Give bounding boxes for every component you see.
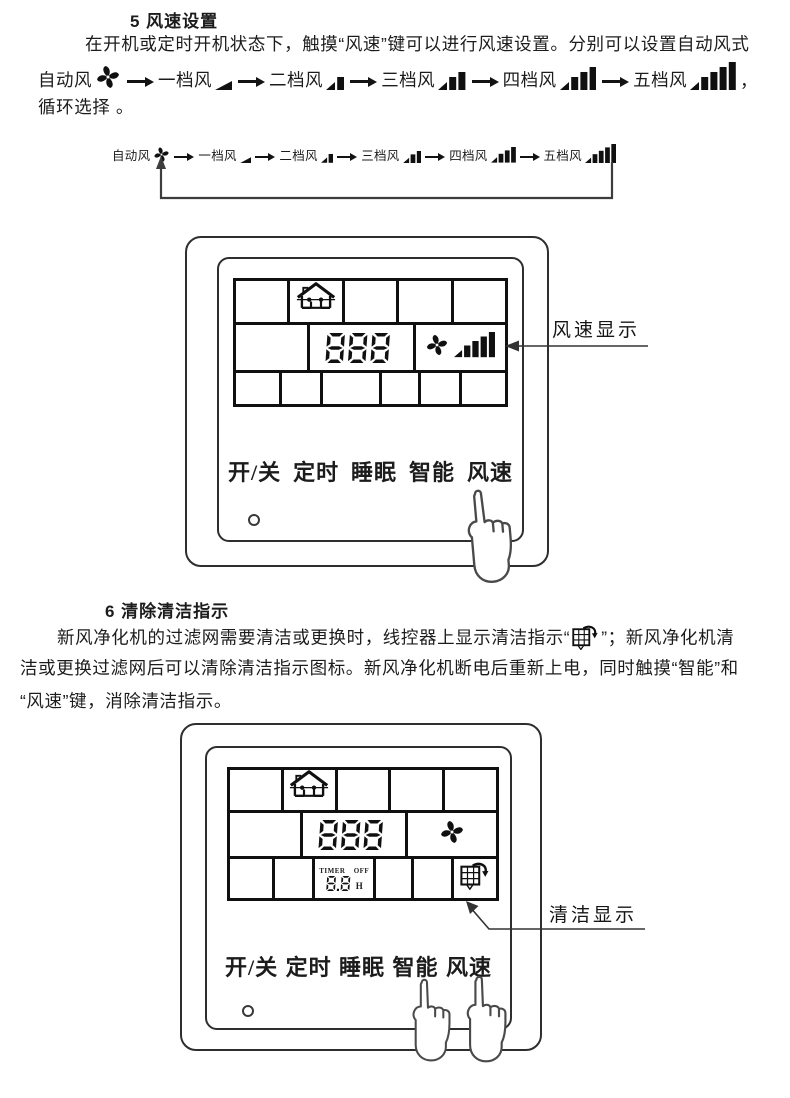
flow-item-speed5: 五档风 [633,62,736,90]
flow-item-label: 四档风 [449,150,487,163]
key-timer: 定时 [286,950,332,982]
section5-paragraph-tail: 循环选择 。 [38,97,134,118]
fan-speed-callout-label: 风速显示 [552,315,640,342]
speed-bars-icon [326,77,344,90]
speed-bars-icon [560,67,597,90]
fan-icon [153,146,170,163]
paragraph-text: 新风净化机的过滤网需要清洁或更换时，线控器上显示清洁指示“ [57,627,570,647]
key-power: 开/关 [225,950,278,982]
fan-speed-cycle-diagram: 自动风 一档风 二档风 三档风 四档风 五档风 [112,139,616,163]
section6-paragraph-line2: 洁或更换过滤网后可以清除清洁指示图标。新风净化机断电后重新上电，同时触摸“智能”… [20,658,739,679]
key-timer: 定时 [293,455,339,487]
key-fan-speed: 风速 [446,950,492,982]
cycle-loop-line [161,162,612,198]
timer-unit: H [356,882,363,891]
lcd-display [233,278,508,407]
fan-display-cell [408,813,496,856]
key-smart: 智能 [409,455,455,487]
lcd-cell [282,373,320,404]
lcd-cell [345,281,396,322]
indicator-light [248,514,260,526]
filter-clean-icon [572,625,599,655]
arrow-right-icon [127,80,145,83]
timer-display-cell: TIMER OFF H [315,859,373,898]
flow-item-label: 三档风 [361,150,399,163]
house-ventilation-icon [289,770,329,810]
fan-icon [95,64,121,90]
key-sleep: 睡眠 [351,455,397,487]
flow-item-label: 自动风 [112,150,150,163]
clean-indicator-cell [454,859,496,898]
key-power: 开/关 [228,455,281,487]
speed-bars-icon [690,62,736,90]
flow-item-speed4: 四档风 [449,147,515,163]
flow-item-speed3: 三档风 [361,150,421,163]
speed-bars-icon [585,144,616,163]
speed-bars-icon [321,154,333,163]
manual-page: 5 风速设置 在开机或定时开机状态下，触摸“风速”键可以进行风速设置。分别可以设… [0,0,790,1098]
flow-comma: ， [740,73,758,91]
flow-item-auto: 自动风 [38,64,121,90]
fan-speed-display-cell [416,325,505,370]
lcd-cell [236,325,307,370]
arrow-right-icon [238,80,256,83]
lcd-cell [230,813,300,856]
touch-key-row: 开/关 定时 睡眠 智能 风速 [228,455,513,487]
flow-item-speed2: 二档风 [269,72,344,90]
lcd-cell [236,281,287,322]
flow-item-label: 三档风 [381,72,435,90]
flow-item-label: 五档风 [544,150,582,163]
lcd-cell [236,373,279,404]
section5-heading: 5 风速设置 [130,7,218,32]
key-sleep: 睡眠 [339,950,385,982]
flow-item-speed4: 四档风 [503,67,597,90]
lcd-cell [391,770,442,810]
fan-icon [425,333,449,362]
flow-item-speed2: 二档风 [279,150,333,163]
arrow-right-icon [472,80,490,83]
section6-heading: 6 清除清洁指示 [105,597,229,622]
lcd-digits [318,820,391,850]
paragraph-text: ”；新风净化机清 [601,627,734,647]
section6-paragraph-line3: “风速”键，消除清洁指示。 [20,691,232,712]
flow-item-label: 一档风 [198,150,236,163]
flow-item-speed5: 五档风 [544,144,617,163]
arrow-right-icon [520,156,533,158]
flow-item-label: 二档风 [269,72,323,90]
section5-paragraph-line1: 在开机或定时开机状态下，触摸“风速”键可以进行风速设置。分别可以设置自动风式 [85,34,749,55]
lcd-cell [323,373,379,404]
arrow-right-icon [350,80,368,83]
touch-key-row: 开/关 定时 睡眠 智能 风速 [225,950,492,982]
lcd-cell [414,859,451,898]
fan-speed-sequence-inline: 自动风 一档风 二档风 三档风 四档风 五档风 ， [38,56,758,90]
timer-digits [326,876,354,891]
arrow-right-icon [602,80,620,83]
lcd-cell [382,373,418,404]
lcd-digits-cell [303,813,404,856]
section6-paragraph-line1: 新风净化机的过滤网需要清洁或更换时，线控器上显示清洁指示“”；新风净化机清 [57,625,734,655]
flow-item-label: 五档风 [633,72,687,90]
speed-bars-icon [438,72,465,90]
flow-item-label: 四档风 [503,72,557,90]
timer-off-label: OFF [354,867,370,875]
lcd-cell [230,770,281,810]
lcd-cell [399,281,450,322]
indicator-light [242,1005,254,1017]
flow-item-label: 自动风 [38,72,92,90]
arrow-right-icon [425,156,438,158]
lcd-digits [325,333,398,363]
lcd-cell [454,281,505,322]
speed-bars-icon [215,81,232,90]
flow-item-speed1: 一档风 [198,150,251,163]
speed-bars-icon [491,147,516,163]
timer-label: TIMER [319,867,345,875]
lcd-cell [462,373,505,404]
speed-bars-icon [240,157,252,163]
lcd-cell [421,373,459,404]
timer-labels: TIMER OFF [319,867,369,875]
flow-item-label: 二档风 [279,150,317,163]
speed-bars-icon [403,151,422,163]
house-ventilation-icon [296,281,336,322]
lcd-cell [284,770,335,810]
arrow-right-icon [255,156,268,158]
timer-value-row: H [326,876,363,891]
lcd-cell [290,281,341,322]
key-fan-speed: 风速 [467,455,513,487]
flow-item-label: 一档风 [158,72,212,90]
lcd-cell [445,770,496,810]
filter-clean-icon [460,862,490,895]
arrow-right-icon [174,156,187,158]
lcd-cell [376,859,411,898]
flow-item-speed3: 三档风 [381,72,465,90]
lcd-display: TIMER OFF H [227,767,499,901]
flow-item-speed1: 一档风 [158,72,232,90]
arrow-right-icon [337,156,350,158]
lcd-digits-cell [310,325,413,370]
lcd-cell [338,770,389,810]
clean-callout-label: 清洁显示 [549,900,637,927]
lcd-cell [230,859,272,898]
fan-icon [439,819,465,850]
lcd-cell [275,859,312,898]
key-smart: 智能 [393,950,439,982]
flow-item-auto: 自动风 [112,146,170,163]
speed-bars-icon [454,332,495,362]
